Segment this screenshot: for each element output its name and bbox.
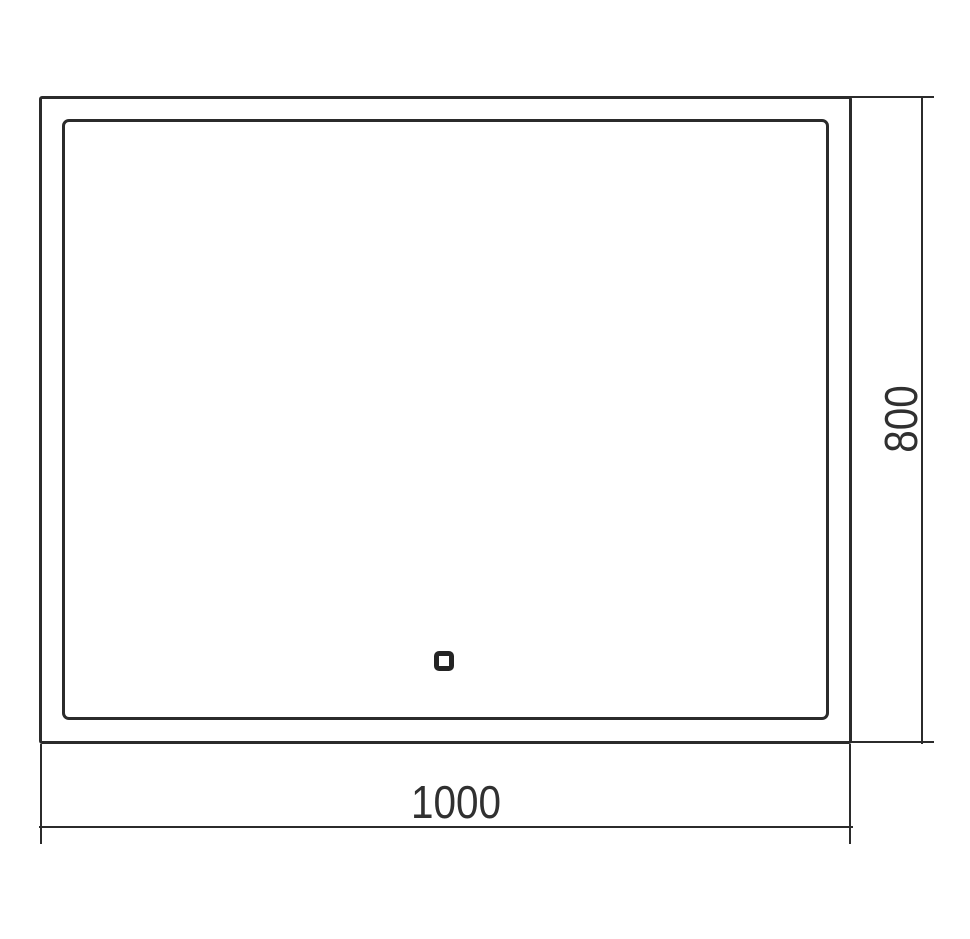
- touch-sensor-icon: [434, 651, 454, 671]
- mirror-technical-drawing: 800 1000: [0, 0, 970, 939]
- width-extension-line-right: [849, 744, 851, 844]
- width-extension-line-left: [40, 744, 42, 844]
- mirror-inner-frame: [62, 119, 829, 720]
- height-dimension-label: 800: [878, 331, 924, 507]
- width-dimension-label: 1000: [368, 779, 544, 825]
